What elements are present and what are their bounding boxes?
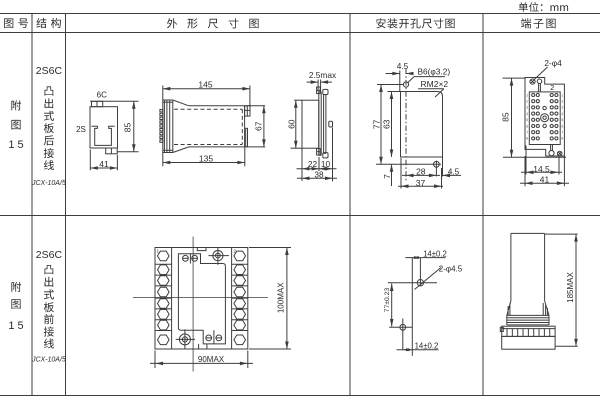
svg-text:B6(φ3.2): B6(φ3.2)	[418, 67, 451, 77]
svg-text:6: 6	[561, 124, 563, 128]
svg-text:67: 67	[253, 121, 263, 131]
svg-text:2.5max: 2.5max	[309, 70, 337, 80]
svg-text:2S6C: 2S6C	[36, 249, 63, 261]
svg-text:37: 37	[416, 178, 426, 188]
svg-text:2-φ4.5: 2-φ4.5	[439, 264, 463, 273]
svg-text:1 5: 1 5	[8, 139, 23, 151]
svg-text:1: 1	[561, 93, 563, 97]
svg-text:135: 135	[199, 154, 213, 164]
svg-text:77: 77	[371, 119, 381, 129]
svg-text:63: 63	[382, 119, 392, 129]
svg-text:14±0.2: 14±0.2	[423, 249, 447, 258]
svg-text:7: 7	[561, 131, 563, 135]
svg-text:14±0.2: 14±0.2	[415, 342, 439, 351]
svg-text:41: 41	[540, 175, 550, 185]
svg-text:4.5: 4.5	[448, 167, 460, 177]
svg-text:2-φ4: 2-φ4	[544, 58, 562, 68]
svg-text:85: 85	[123, 123, 133, 133]
svg-text:1: 1	[526, 93, 528, 97]
svg-text:7: 7	[526, 131, 528, 135]
svg-text:JCX-10A/5: JCX-10A/5	[31, 180, 66, 187]
svg-text:RM2×2: RM2×2	[421, 79, 449, 89]
svg-text:6C: 6C	[97, 90, 107, 99]
svg-text:90MAX: 90MAX	[198, 355, 225, 364]
svg-text:2: 2	[526, 100, 528, 104]
svg-text:2: 2	[561, 100, 563, 104]
svg-text:2: 2	[550, 83, 554, 92]
svg-text:4: 4	[561, 112, 563, 116]
svg-text:185MAX: 185MAX	[566, 271, 575, 302]
svg-text:2S6C: 2S6C	[36, 65, 63, 77]
svg-text:JCX-10A/5: JCX-10A/5	[31, 357, 66, 364]
svg-text:145: 145	[198, 80, 212, 90]
svg-text:85: 85	[500, 112, 510, 122]
svg-text:7: 7	[382, 174, 392, 179]
svg-text:3: 3	[526, 106, 528, 110]
svg-text:6: 6	[526, 124, 528, 128]
svg-text:10: 10	[321, 159, 331, 169]
svg-text:28: 28	[416, 167, 426, 177]
svg-text:2S: 2S	[76, 125, 86, 134]
svg-text:4.5: 4.5	[397, 61, 409, 71]
svg-text:4: 4	[526, 112, 528, 116]
svg-text:60: 60	[287, 119, 297, 129]
svg-text:5: 5	[526, 118, 528, 122]
svg-text:8: 8	[561, 137, 563, 141]
svg-text:38: 38	[314, 169, 324, 179]
svg-text:41: 41	[99, 159, 109, 169]
svg-text:22: 22	[308, 159, 318, 169]
svg-text:1 5: 1 5	[8, 320, 23, 332]
svg-text:100MAX: 100MAX	[277, 282, 286, 313]
svg-text:8: 8	[526, 137, 528, 141]
svg-text:14.5: 14.5	[533, 164, 550, 174]
svg-text:5: 5	[561, 118, 563, 122]
svg-text:3: 3	[561, 106, 563, 110]
svg-text:77±0.23: 77±0.23	[384, 288, 391, 313]
